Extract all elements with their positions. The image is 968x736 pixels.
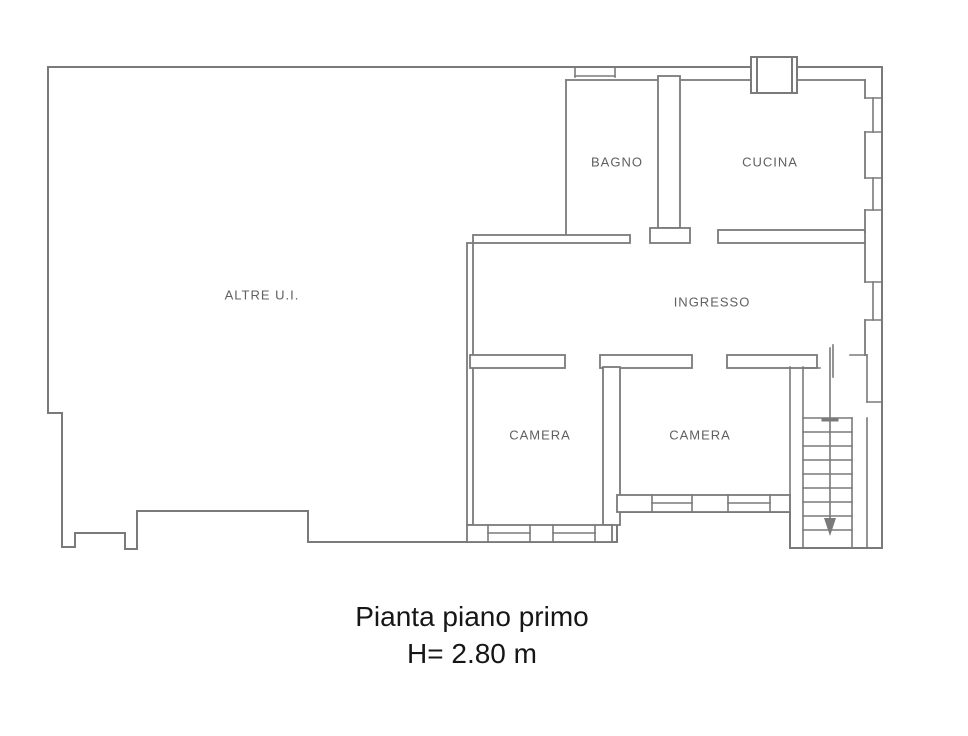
room-label-ingresso: INGRESSO [674,295,751,310]
ingresso-top-wall [473,235,630,243]
stair-treads [803,418,852,530]
ingresso-bottom-wall-c [727,355,817,368]
room-label-bagno: BAGNO [591,155,643,170]
left-rooms-wall [467,243,473,525]
room-label-altre-ui: ALTRE U.I. [225,288,300,303]
floor-plan-page: ALTRE U.I. BAGNO CUCINA INGRESSO CAMERA … [0,0,968,736]
cucina-bottom-wall [718,230,865,243]
window-right-3 [865,282,882,320]
stair-direction-arrow-icon [823,348,837,536]
window-right-1 [865,98,882,132]
plan-caption-title: Pianta piano primo [355,598,588,635]
ingresso-bottom-wall-a [470,355,565,368]
interior-walls [467,76,865,542]
room-label-cucina: CUCINA [742,155,798,170]
bagno-cucina-partition [658,76,680,228]
room-label-camera-right: CAMERA [669,428,731,443]
exterior-wall-outline [48,67,882,549]
window-top-bagno [575,67,615,77]
plan-caption-height: H= 2.80 m [355,635,588,672]
ingresso-bottom-wall-b [600,355,692,368]
room-label-camera-left: CAMERA [509,428,571,443]
staircase [790,345,882,548]
partition-foot [650,228,690,243]
window-right-2 [865,178,882,210]
plan-caption: Pianta piano primo H= 2.80 m [355,598,588,672]
chimney-box [751,57,797,93]
